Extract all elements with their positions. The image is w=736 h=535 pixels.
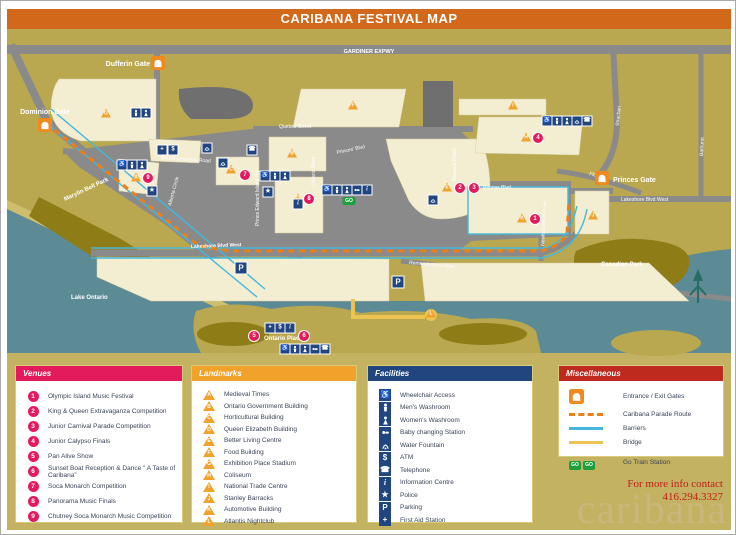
legend-item-label: Wheelchair Access — [400, 392, 455, 399]
venue-number-badge: 8 — [26, 496, 40, 507]
bridge-icon — [569, 441, 609, 444]
women-icon — [378, 414, 392, 426]
venue-legend-item: 9Chutney Soca Monarch Music Competition — [26, 509, 176, 524]
landmark-triangle-icon: B — [202, 401, 216, 411]
gate-label-dominion: Dominion Gate — [20, 109, 70, 116]
road-label-princes-blvd-e: Princes Blvd — [483, 185, 511, 191]
landmark-legend-item: KAutomotive Building — [202, 504, 350, 516]
venue-number-badge: 5 — [26, 451, 40, 462]
misc-legend-item: Caribana Parade Route — [569, 411, 717, 418]
barrier-icon — [569, 427, 609, 430]
area-label-canadian-park: Canadian Park — [601, 262, 643, 268]
venue-legend-item: 3Junior Carnival Parade Competition — [26, 419, 176, 434]
area-label-lake-ontario: Lake Ontario — [71, 295, 108, 301]
landmark-legend-item: CHorticultural Building — [202, 412, 350, 424]
legend-item-label: ATM — [400, 454, 413, 461]
road-label-quebec: Quebec Street — [279, 124, 312, 130]
legend-item-label: Men's Washroom — [400, 404, 450, 411]
facility-legend-item: ★Police — [378, 489, 526, 502]
landmark-legend-item: DQueen Elizabeth Building — [202, 424, 350, 436]
legend-item-label: Automotive Building — [224, 506, 281, 513]
legend-item-label: Entrance / Exit Gates — [623, 393, 684, 400]
area-label-ontario-place: Ontario Place — [264, 336, 303, 342]
legend-item-label: Chutney Soca Monarch Music Competition — [48, 513, 171, 520]
legend-miscellaneous: Miscellaneous Entrance / Exit GatesCarib… — [558, 365, 724, 457]
legend-item-label: Exhibition Place Stadium — [224, 460, 296, 467]
road-label-bathurst: Bathurst — [699, 137, 706, 156]
legend-item-label: King & Queen Extravaganza Competition — [48, 408, 167, 415]
legend-item-label: Atlantis Nightclub — [224, 518, 274, 525]
road-label-pei: Prince Edward Island Rd — [255, 171, 261, 226]
landmark-triangle-icon: G — [202, 459, 216, 469]
legend-item-label: Police — [400, 492, 418, 499]
phone-icon: ☎ — [378, 464, 392, 476]
venue-legend-item: 6Sunset Boat Reception & Dance " A Taste… — [26, 464, 176, 479]
landmark-legend-item: BOntario Government Building — [202, 401, 350, 413]
road-label-nunavut: Nunavut Road — [452, 149, 458, 181]
legend-item-label: Junior Carnival Parade Competition — [48, 423, 151, 430]
venue-number-badge: 4 — [26, 436, 40, 447]
legend-item-label: Better Living Centre — [224, 437, 281, 444]
venue-legend-item: 8Panorama Music Finals — [26, 494, 176, 509]
road-label-gardiner: GARDINER EXPWY — [344, 49, 395, 55]
facility-legend-item: ☎Telephone — [378, 464, 526, 477]
landmark-triangle-icon: C — [202, 413, 216, 423]
gate-label-dufferin: Dufferin Gate — [106, 61, 150, 68]
legend-facilities: Facilities ♿Wheelchair AccessMen's Washr… — [367, 365, 533, 523]
legend-item-label: First Aid Station — [400, 517, 446, 524]
landmark-triangle-icon: K — [202, 505, 216, 515]
legend-item-label: Olympic Island Music Festival — [48, 393, 134, 400]
landmark-triangle-icon: I — [202, 482, 216, 492]
road-label-ontario-drive: Ontario Drive — [311, 156, 317, 186]
landmark-triangle-icon: J — [202, 493, 216, 503]
atm-icon: $ — [378, 452, 392, 464]
landmark-triangle-icon: E — [202, 436, 216, 446]
legend-item-label: Soca Monarch Competition — [48, 483, 126, 490]
legend-facilities-title: Facilities — [368, 366, 532, 381]
parking-icon: P — [378, 502, 392, 514]
police-icon: ★ — [378, 489, 392, 501]
baby-icon — [378, 427, 392, 439]
facility-legend-item: Women's Washroom — [378, 414, 526, 427]
facility-legend-item: iInformation Centre — [378, 477, 526, 490]
venue-legend-item: 4Junior Calypso Finals — [26, 434, 176, 449]
caribana-festival-map-page: GARDINER EXPWY British Columbia Road Que… — [0, 0, 736, 535]
legend-item-label: Pan Alive Show — [48, 453, 93, 460]
venue-legend-item: 7Soca Monarch Competition — [26, 479, 176, 494]
caribana-logo: caribana — [577, 489, 727, 531]
landmark-legend-item: INational Trade Centre — [202, 481, 350, 493]
venue-legend-item: 1Olympic Island Music Festival — [26, 389, 176, 404]
page-title: CARIBANA FESTIVAL MAP — [7, 9, 731, 29]
venue-number-badge: 2 — [26, 406, 40, 417]
gate-label-princes: Princes Gate — [613, 177, 656, 184]
landmark-legend-item: FFood Building — [202, 447, 350, 459]
road-label-lakeshore-east: Lakeshore Blvd West — [621, 197, 669, 203]
landmark-legend-item: AMedieval Times — [202, 389, 350, 401]
legend-item-label: Medieval Times — [224, 391, 269, 398]
route-icon — [569, 413, 609, 416]
legend-item-label: Queen Elizabeth Building — [224, 426, 297, 433]
legend-item-label: Information Centre — [400, 479, 454, 486]
legend-item-label: Telephone — [400, 467, 430, 474]
gate-icon — [569, 389, 609, 404]
legend-item-label: Go Train Station — [623, 459, 670, 466]
landmark-triangle-icon: A — [202, 390, 216, 400]
venue-legend-item: 5Pan Alive Show — [26, 449, 176, 464]
facility-legend-item: Baby changing Station — [378, 427, 526, 440]
legend-landmarks-title: Landmarks — [192, 366, 356, 381]
venue-number-badge: 6 — [26, 466, 40, 477]
misc-legend-item: Bridge — [569, 439, 717, 446]
landmark-legend-item: HColiseum — [202, 470, 350, 482]
landmark-triangle-icon: H — [202, 470, 216, 480]
misc-legend-item: Barriers — [569, 425, 717, 432]
legend-item-label: Coliseum — [224, 472, 251, 479]
legend-item-label: Panorama Music Finals — [48, 498, 116, 505]
legend-item-label: Junior Calypso Finals — [48, 438, 110, 445]
legend-item-label: Sunset Boat Reception & Dance " A Taste … — [48, 465, 176, 479]
legend-landmarks: Landmarks AMedieval TimesBOntario Govern… — [191, 365, 357, 523]
legend-item-label: Parking — [400, 504, 422, 511]
legend-item-label: Baby changing Station — [400, 429, 465, 436]
landmark-legend-item: LAtlantis Nightclub — [202, 516, 350, 528]
legend-item-label: Bridge — [623, 439, 642, 446]
legend-item-label: Ontario Government Building — [224, 403, 308, 410]
landmark-legend-item: GExhibition Place Stadium — [202, 458, 350, 470]
facility-legend-item: ♿Wheelchair Access — [378, 389, 526, 402]
landmark-legend-item: JStanley Barracks — [202, 493, 350, 505]
venue-number-badge: 7 — [26, 481, 40, 492]
legend-item-label: Water Fountain — [400, 442, 444, 449]
facility-legend-item: $ATM — [378, 452, 526, 465]
misc-legend-item: GOGOGo Train Station — [569, 453, 717, 471]
facility-legend-item: PParking — [378, 502, 526, 515]
landmark-legend-item: EBetter Living Centre — [202, 435, 350, 447]
facility-legend-item: Water Fountain — [378, 439, 526, 452]
men-icon — [378, 402, 392, 414]
venue-legend-item: 2King & Queen Extravaganza Competition — [26, 404, 176, 419]
venue-number-badge: 3 — [26, 421, 40, 432]
landmark-triangle-icon: L — [202, 516, 216, 526]
landmark-triangle-icon: D — [202, 424, 216, 434]
legend-item-label: Barriers — [623, 425, 646, 432]
fountain-icon — [378, 439, 392, 451]
facility-legend-item: +First Aid Station — [378, 514, 526, 527]
info-icon: i — [378, 477, 392, 489]
venue-number-badge: 1 — [26, 391, 40, 402]
venue-number-badge: 9 — [26, 511, 40, 522]
facility-legend-item: Men's Washroom — [378, 402, 526, 415]
legend-item-label: Stanley Barracks — [224, 495, 273, 502]
legend-item-label: Caribana Parade Route — [623, 411, 691, 418]
legend-item-label: Food Building — [224, 449, 264, 456]
legend-item-label: Horticultural Building — [224, 414, 284, 421]
legend-miscellaneous-title: Miscellaneous — [559, 366, 723, 381]
firstaid-icon: + — [378, 514, 392, 526]
landmark-triangle-icon: F — [202, 447, 216, 457]
misc-legend-item: Entrance / Exit Gates — [569, 389, 717, 404]
wheelchair-icon: ♿ — [378, 389, 392, 401]
legend-item-label: National Trade Centre — [224, 483, 288, 490]
legend-venues-title: Venues — [16, 366, 182, 381]
legend-venues: Venues 1Olympic Island Music Festival2Ki… — [15, 365, 183, 523]
go-icon: GOGO — [569, 453, 609, 471]
legend-item-label: Women's Washroom — [400, 417, 460, 424]
